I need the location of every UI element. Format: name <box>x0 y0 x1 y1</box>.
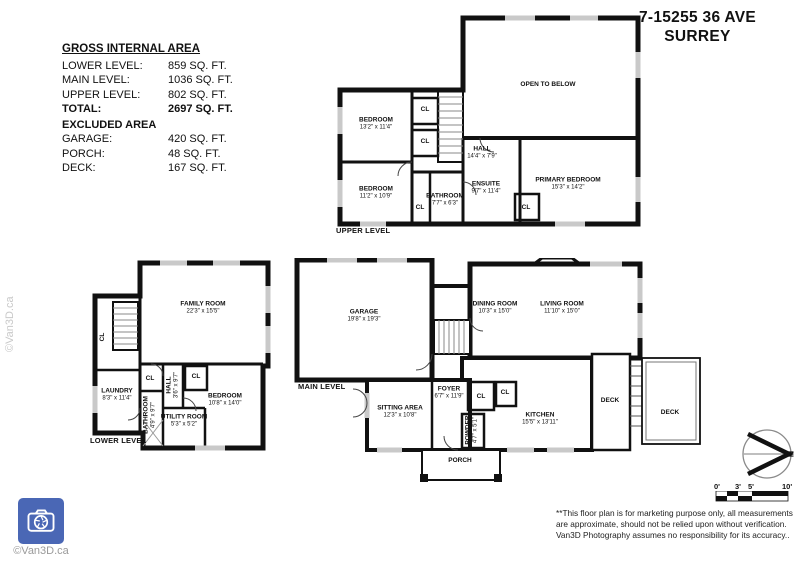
main-level-plan: GARAGE19'8" x 19'3"DINING ROOM10'3" x 15… <box>272 258 702 488</box>
upper-level-plan: OPEN TO BELOWBEDROOM13'2" x 11'4"CLCLHAL… <box>330 12 645 242</box>
room-label: CL <box>99 333 107 342</box>
logo-caption: ©Van3D.ca <box>6 545 76 557</box>
room-label: BEDROOM11'2" x 10'9" <box>359 186 393 201</box>
disclaimer-text: **This floor plan is for marketing purpo… <box>556 508 796 540</box>
room-label: FAMILY ROOM22'3" x 15'5" <box>180 301 225 316</box>
scale-tick: 10' <box>782 482 792 491</box>
room-label: FOYER6'7" x 11'9" <box>434 386 463 401</box>
lower-room-labels: FAMILY ROOM22'3" x 15'5"CLLAUNDRY8'3" x … <box>85 258 285 458</box>
room-label: PRIMARY BEDROOM15'3" x 14'2" <box>535 177 600 192</box>
room-label: POWDER4'7" x 5'1" <box>465 415 480 444</box>
room-label: CL <box>421 138 430 146</box>
area-row: LOWER LEVEL:859 SQ. FT. <box>62 59 233 74</box>
room-label: OPEN TO BELOW <box>520 81 575 89</box>
room-label: CL <box>416 204 425 212</box>
scale-bar: 0' 3' 5' 10' <box>712 482 792 504</box>
scale-tick: 5' <box>748 482 754 491</box>
room-label: CL <box>192 373 201 381</box>
area-row: UPPER LEVEL:802 SQ. FT. <box>62 88 233 103</box>
room-label: CL <box>146 375 155 383</box>
lower-level-plan: FAMILY ROOM22'3" x 15'5"CLLAUNDRY8'3" x … <box>85 258 285 458</box>
room-label: PORCH <box>448 457 471 465</box>
room-label: DECK <box>601 397 619 405</box>
room-label: CL <box>522 204 531 212</box>
room-label: DINING ROOM10'3" x 15'0" <box>473 301 518 316</box>
area-rows: LOWER LEVEL:859 SQ. FT.MAIN LEVEL:1036 S… <box>62 59 233 117</box>
area-row: DECK:167 SQ. FT. <box>62 161 233 176</box>
room-label: GARAGE19'8" x 19'3" <box>348 309 381 324</box>
van3d-logo <box>18 498 64 544</box>
compass-north-label: N <box>785 451 795 458</box>
room-label: CL <box>501 389 510 397</box>
room-label: UTILITY ROOM5'3" x 5'2" <box>161 414 207 429</box>
room-label: BATHROOM4'9" x 9'7" <box>143 396 158 434</box>
scale-tick-labels: 0' 3' 5' 10' <box>712 482 792 491</box>
compass: N <box>740 426 796 482</box>
room-label: BEDROOM13'2" x 11'4" <box>359 117 393 132</box>
room-label: DECK <box>661 409 679 417</box>
room-label: HALL3'6" x 9'7" <box>166 372 181 398</box>
room-label: BATHROOM7'7" x 6'3" <box>426 193 464 208</box>
floor-label-upper: UPPER LEVEL <box>336 226 390 235</box>
room-label: LAUNDRY8'3" x 11'4" <box>101 388 133 403</box>
room-label: LIVING ROOM11'10" x 15'0" <box>540 301 584 316</box>
room-label: SITTING AREA12'3" x 10'8" <box>377 405 423 420</box>
camera-icon <box>23 503 59 539</box>
room-label: CL <box>477 393 486 401</box>
area-row: GARAGE:420 SQ. FT. <box>62 132 233 147</box>
scale-bar-graphic <box>712 491 792 502</box>
area-row: PORCH:48 SQ. FT. <box>62 147 233 162</box>
room-label: HALL14'4" x 7'9" <box>467 146 497 161</box>
excluded-area-heading: EXCLUDED AREA <box>62 118 233 133</box>
main-room-labels: GARAGE19'8" x 19'3"DINING ROOM10'3" x 15… <box>272 258 702 488</box>
area-row: MAIN LEVEL:1036 SQ. FT. <box>62 73 233 88</box>
room-label: ENSUITE9'7" x 11'4" <box>471 181 500 196</box>
floor-plan-sheet: 7-15255 36 AVE SURREY GROSS INTERNAL ARE… <box>0 0 800 567</box>
room-label: BEDROOM10'8" x 14'0" <box>208 393 242 408</box>
room-label: CL <box>421 106 430 114</box>
compass-icon: N <box>740 426 796 482</box>
area-summary-heading: GROSS INTERNAL AREA <box>62 42 233 57</box>
side-watermark: ©Van3D.ca <box>4 296 16 352</box>
excluded-rows: GARAGE:420 SQ. FT.PORCH:48 SQ. FT.DECK:1… <box>62 132 233 176</box>
room-label: KITCHEN15'5" x 13'11" <box>522 412 558 427</box>
floor-label-lower: LOWER LEVEL <box>90 436 146 445</box>
scale-tick: 0' <box>714 482 720 491</box>
upper-room-labels: OPEN TO BELOWBEDROOM13'2" x 11'4"CLCLHAL… <box>330 12 645 242</box>
floor-label-main: MAIN LEVEL <box>298 382 345 391</box>
scale-tick: 3' <box>735 482 741 491</box>
area-row: TOTAL:2697 SQ. FT. <box>62 102 233 117</box>
area-summary: GROSS INTERNAL AREA LOWER LEVEL:859 SQ. … <box>62 42 233 176</box>
